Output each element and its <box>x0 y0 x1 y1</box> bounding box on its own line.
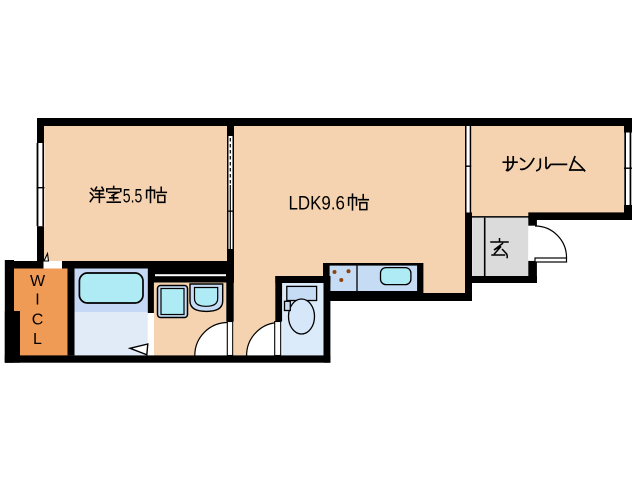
svg-text:5.5: 5.5 <box>123 185 143 207</box>
svg-text:W: W <box>30 273 46 290</box>
svg-text:I: I <box>35 292 39 309</box>
svg-text:LDK9.6: LDK9.6 <box>289 191 345 213</box>
svg-text:L: L <box>33 331 42 348</box>
svg-text:C: C <box>32 311 44 328</box>
